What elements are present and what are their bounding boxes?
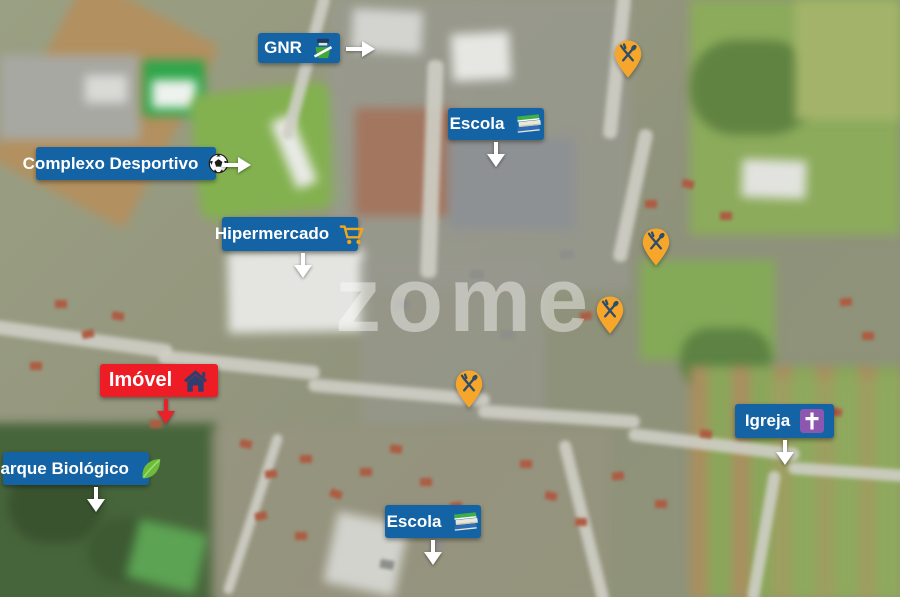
restaurant-pin-icon[interactable]	[613, 38, 643, 80]
marker-igreja[interactable]: Igreja	[735, 404, 834, 466]
books-icon	[514, 113, 542, 135]
restaurant-pin-icon[interactable]	[454, 368, 484, 410]
marker-label: Hipermercado	[215, 224, 329, 244]
arrow-right-icon	[222, 154, 252, 176]
arrow-down-icon	[422, 540, 444, 566]
marker-imovel[interactable]: Imóvel	[100, 364, 218, 425]
arrow-right-icon	[346, 38, 376, 60]
marker-complexo-desportivo[interactable]: Complexo Desportivo	[36, 147, 252, 180]
shopping-cart-icon	[339, 223, 365, 246]
marker-hipermercado[interactable]: Hipermercado	[222, 217, 358, 279]
marker-label: GNR	[264, 38, 302, 58]
marker-label: Escola	[450, 114, 505, 134]
arrow-down-icon	[774, 440, 796, 466]
arrow-down-icon	[485, 142, 507, 168]
marker-escola-bottom[interactable]: Escola	[385, 505, 481, 566]
arrow-down-icon	[155, 399, 177, 425]
marker-label: Igreja	[745, 411, 790, 431]
aerial-map: zome GNR	[0, 0, 900, 597]
marker-parque-biologico[interactable]: Parque Biológico	[3, 452, 149, 513]
house-icon	[182, 369, 209, 393]
gnr-police-icon	[312, 37, 334, 59]
marker-label: Complexo Desportivo	[23, 154, 199, 174]
arrow-down-icon	[85, 487, 107, 513]
watermark: zome	[335, 248, 594, 353]
arrow-down-icon	[292, 253, 314, 279]
marker-gnr[interactable]: GNR	[258, 33, 376, 63]
church-cross-icon	[800, 409, 824, 433]
restaurant-pin-icon[interactable]	[641, 226, 671, 268]
marker-label: Imóvel	[109, 369, 172, 392]
marker-escola-top[interactable]: Escola	[448, 108, 544, 168]
marker-label: Parque Biológico	[0, 459, 129, 479]
books-icon	[451, 511, 479, 533]
restaurant-pin-icon[interactable]	[595, 294, 625, 336]
marker-label: Escola	[387, 512, 442, 532]
leaf-icon	[139, 457, 163, 481]
